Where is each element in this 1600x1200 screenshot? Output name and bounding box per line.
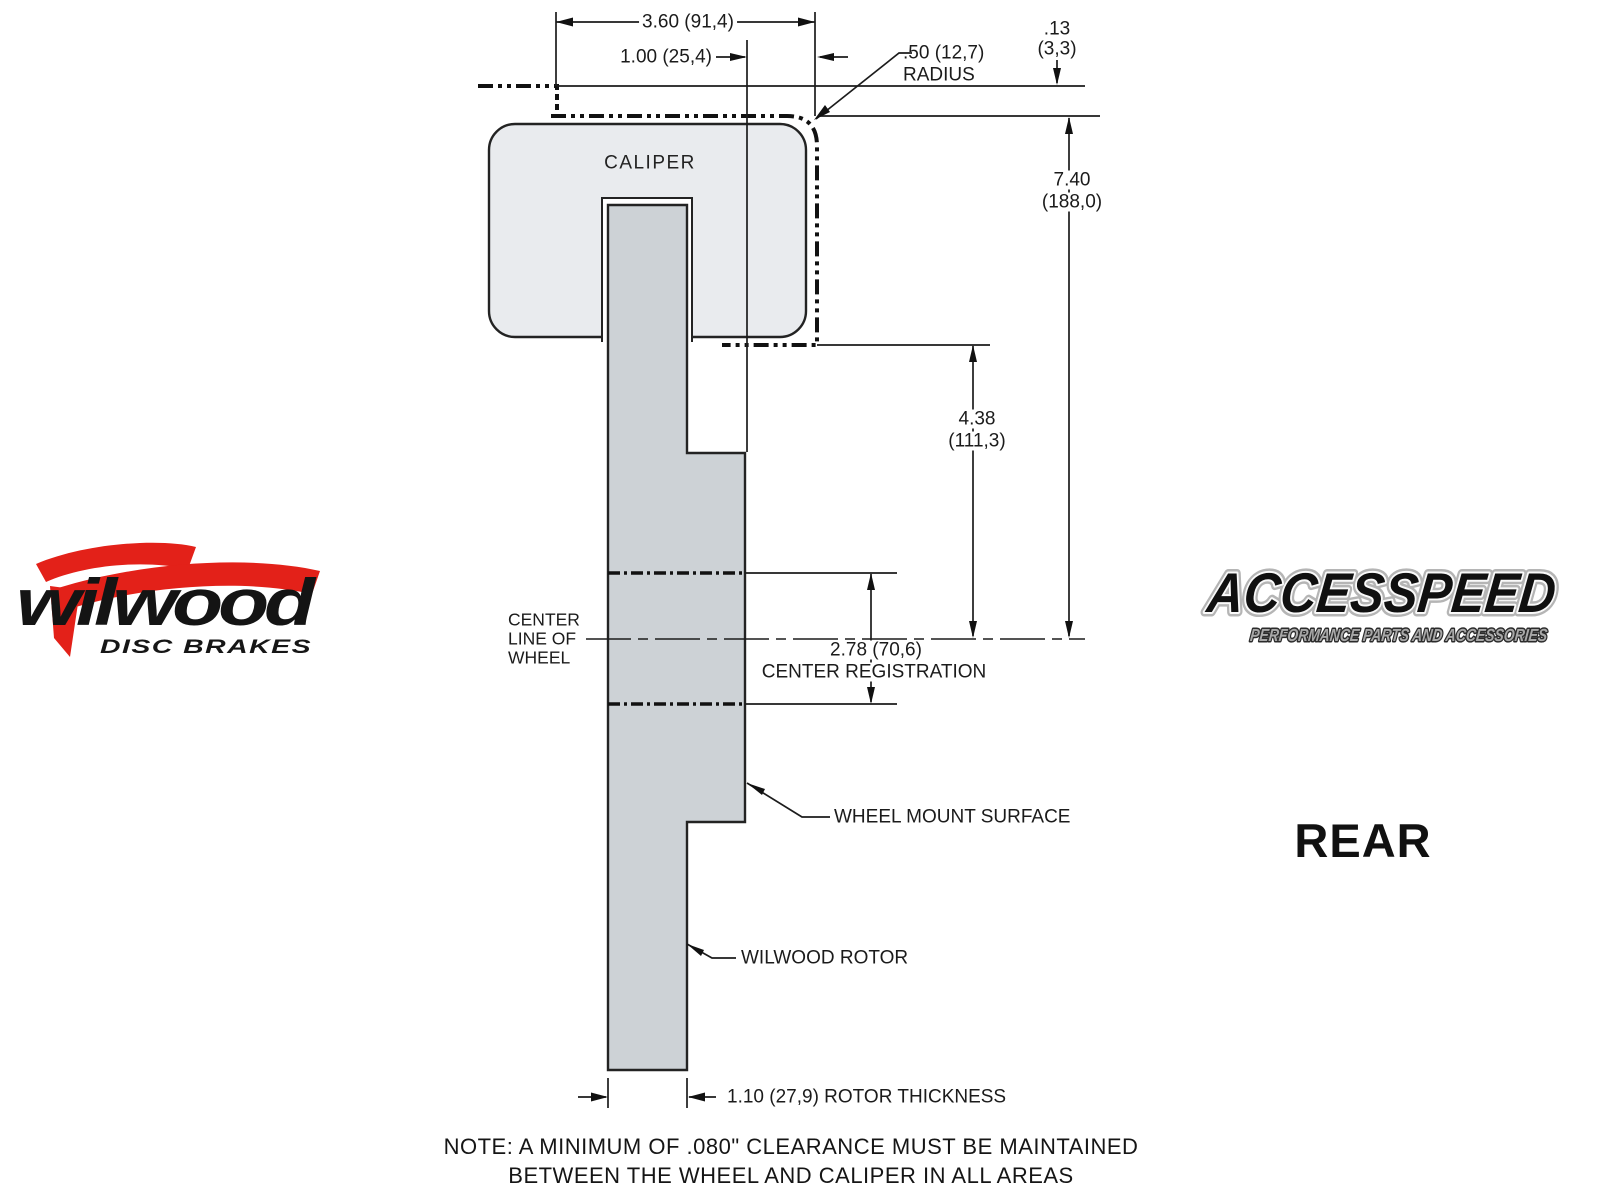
- wilwood-wordmark: wilwood: [16, 565, 317, 639]
- dim-clearance-in: .13: [1044, 20, 1070, 39]
- dim-mount-depth-mm: (111,3): [945, 432, 1008, 451]
- wilwood-rotor-label: WILWOOD ROTOR: [741, 949, 908, 968]
- caliper-label: CALIPER: [604, 154, 696, 173]
- wilwood-logo: wilwood DISC BRAKES: [16, 543, 320, 658]
- accesspeed-wordmark: ACCESSPEED: [1203, 561, 1559, 624]
- arrow-thickness-right: [688, 1093, 705, 1102]
- brake-diagram: wilwood DISC BRAKES ACCESSPEED ACCESSPEE…: [0, 0, 1600, 1200]
- dim-center-registration: 2.78 (70,6): [827, 641, 925, 660]
- clearance-note-line1: NOTE: A MINIMUM OF .080" CLEARANCE MUST …: [444, 1136, 1139, 1158]
- view-label-rear: REAR: [1294, 814, 1431, 867]
- wilwood-tagline: DISC BRAKES: [100, 637, 312, 658]
- center-registration-label: CENTER REGISTRATION: [759, 663, 990, 682]
- clearance-note-line2: BETWEEN THE WHEEL AND CALIPER IN ALL ARE…: [508, 1165, 1073, 1187]
- arrow-2-78-down: [867, 687, 875, 704]
- dim-caliper-overhang: 1.00 (25,4): [620, 48, 712, 67]
- arrow-7-40-down: [1065, 621, 1073, 638]
- centerline-label-1: CENTER: [508, 611, 580, 629]
- dim-rotor-thickness: 1.10 (27,9) ROTOR THICKNESS: [727, 1088, 1006, 1107]
- arrow-4-38-down: [969, 621, 977, 638]
- arrow-4-38-up: [969, 345, 977, 362]
- accesspeed-logo: ACCESSPEED ACCESSPEED PERFORMANCE PARTS …: [1200, 561, 1559, 645]
- arrow-3-60-right: [798, 18, 815, 27]
- arrow-radius-leader: [814, 105, 830, 120]
- centerline-label-2: LINE OF: [508, 630, 576, 648]
- dim-caliper-height-in: 7.40: [1051, 171, 1094, 190]
- dim-overall-width: 3.60 (91,4): [639, 13, 737, 32]
- arrow-thickness-left: [591, 1093, 608, 1102]
- dim-radius-word: RADIUS: [903, 66, 975, 85]
- dim-clearance-mm: (3,3): [1037, 40, 1076, 59]
- dim-mount-depth-in: 4.38: [956, 410, 999, 429]
- arrow-wheel-mount-leader: [747, 783, 765, 795]
- rotor-leader-line: [687, 944, 736, 958]
- dim-caliper-height-mm: (188,0): [1039, 193, 1105, 212]
- arrow-rotor-leader: [687, 944, 704, 956]
- arrow-3-60-left: [556, 18, 573, 27]
- arrow-2-78-up: [867, 573, 875, 590]
- arrow-1-00-right: [817, 53, 834, 61]
- dim-radius-value: .50 (12,7): [903, 44, 984, 63]
- accesspeed-tagline: PERFORMANCE PARTS AND ACCESSORIES: [1249, 625, 1548, 645]
- arrow-1-00-left: [730, 53, 747, 61]
- centerline-label-3: WHEEL: [508, 649, 570, 667]
- wheel-mount-surface-label: WHEEL MOUNT SURFACE: [834, 808, 1070, 827]
- arrow-7-40-up: [1065, 117, 1073, 134]
- technical-drawing-page: wilwood DISC BRAKES ACCESSPEED ACCESSPEE…: [0, 0, 1600, 1200]
- arrow-0-13-down: [1053, 68, 1061, 85]
